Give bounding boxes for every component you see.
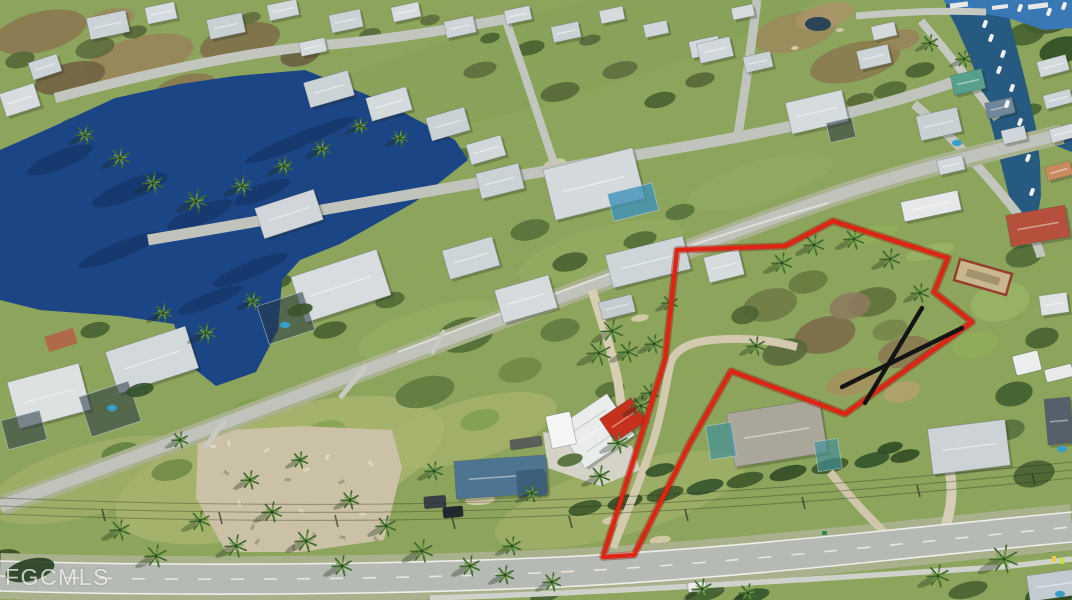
pond bbox=[805, 17, 831, 31]
palm-crown bbox=[626, 350, 629, 353]
palm-frond bbox=[225, 546, 236, 547]
palm-crown bbox=[888, 257, 891, 260]
palm-crown bbox=[928, 41, 931, 44]
palm-frond bbox=[587, 353, 599, 354]
palm-crown bbox=[1002, 557, 1005, 560]
palm-crown bbox=[251, 299, 254, 302]
palm-crown bbox=[746, 591, 749, 594]
palm-frond bbox=[601, 331, 612, 332]
rubble bbox=[210, 445, 216, 448]
pool bbox=[280, 322, 290, 328]
palm-crown bbox=[652, 342, 655, 345]
vehicle bbox=[443, 506, 464, 519]
palm-crown bbox=[234, 544, 237, 547]
vehicle-body bbox=[424, 495, 447, 509]
rubble bbox=[227, 440, 231, 446]
palm-crown bbox=[639, 404, 642, 407]
palm-crown bbox=[962, 57, 965, 60]
pool-cage bbox=[814, 438, 842, 471]
rubble bbox=[285, 478, 291, 482]
house bbox=[1039, 292, 1072, 319]
palm-crown bbox=[151, 181, 154, 184]
palm-crown bbox=[118, 528, 121, 531]
palm-frond bbox=[990, 559, 1004, 560]
palm-crown bbox=[178, 438, 181, 441]
palm-crown bbox=[240, 184, 243, 187]
palm-crown bbox=[468, 564, 471, 567]
vehicle bbox=[424, 495, 447, 509]
palm-crown bbox=[550, 580, 553, 583]
palm-crown bbox=[194, 199, 197, 202]
palm-frond bbox=[295, 541, 306, 542]
pool bbox=[1057, 446, 1067, 452]
person bbox=[1052, 556, 1056, 562]
palm-crown bbox=[852, 237, 855, 240]
pool bbox=[107, 405, 117, 411]
palm-crown bbox=[616, 441, 619, 444]
street-sign bbox=[822, 531, 827, 535]
house bbox=[1044, 397, 1072, 448]
palm-crown bbox=[812, 243, 815, 246]
palm-crown bbox=[161, 311, 164, 314]
pool-cage-screen bbox=[814, 438, 842, 471]
aerial-photo-canvas bbox=[0, 0, 1072, 600]
palm-frond bbox=[145, 556, 156, 557]
palm-crown bbox=[248, 478, 251, 481]
palm-frond bbox=[411, 551, 422, 552]
palm-crown bbox=[918, 291, 921, 294]
palm-crown bbox=[348, 498, 351, 501]
pool bbox=[952, 140, 962, 146]
palm-crown bbox=[420, 549, 423, 552]
palm-crown bbox=[358, 124, 361, 127]
pool-cage bbox=[706, 422, 737, 460]
person bbox=[1060, 558, 1064, 564]
palm-crown bbox=[597, 351, 600, 354]
vehicle-body bbox=[443, 506, 464, 519]
palm-crown bbox=[610, 329, 613, 332]
palm-crown bbox=[282, 164, 285, 167]
palm-crown bbox=[298, 458, 301, 461]
palm-crown bbox=[384, 524, 387, 527]
palm-crown bbox=[754, 344, 757, 347]
palm-crown bbox=[598, 474, 601, 477]
palm-crown bbox=[510, 544, 513, 547]
palm-crown bbox=[204, 331, 207, 334]
palm-crown bbox=[304, 539, 307, 542]
palm-frond bbox=[185, 201, 196, 202]
palm-crown bbox=[432, 469, 435, 472]
palm-crown bbox=[83, 133, 86, 136]
palm-crown bbox=[530, 491, 533, 494]
pool-cage-screen bbox=[706, 422, 737, 460]
palm-crown bbox=[700, 587, 703, 590]
palm-crown bbox=[780, 261, 783, 264]
palm-frond bbox=[927, 576, 938, 577]
palm-crown bbox=[320, 147, 323, 150]
aerial-photo: FGCMLS bbox=[0, 0, 1072, 600]
aerial-scenery bbox=[0, 0, 1072, 600]
palm-crown bbox=[936, 574, 939, 577]
palm-crown bbox=[340, 564, 343, 567]
palm-crown bbox=[503, 573, 506, 576]
palm-crown bbox=[118, 156, 121, 159]
palm-crown bbox=[154, 554, 157, 557]
palm-crown bbox=[398, 136, 401, 139]
pool bbox=[1055, 591, 1065, 597]
